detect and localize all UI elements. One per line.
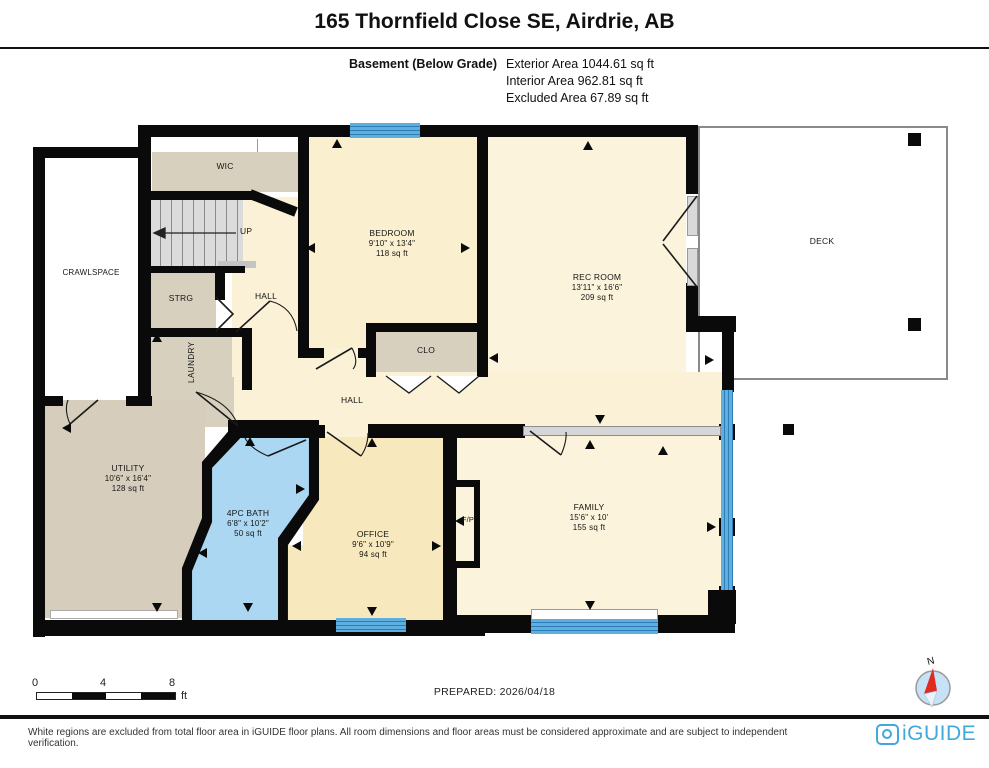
room-label-crawlspace: CRAWLSPACE	[46, 268, 136, 278]
floorplan-page: 165 Thornfield Close SE, Airdrie, AB Bas…	[0, 0, 989, 768]
header-divider	[0, 47, 989, 49]
room-label-rec-room: REC ROOM13'11" x 16'6"209 sq ft	[537, 272, 657, 304]
half-wall	[523, 426, 721, 436]
footer-divider	[0, 715, 989, 719]
page-title: 165 Thornfield Close SE, Airdrie, AB	[0, 10, 989, 34]
room-label-wic: WIC	[195, 161, 255, 172]
wall	[686, 137, 698, 194]
interior-area: Interior Area 962.81 sq ft	[506, 74, 643, 88]
wall	[233, 425, 325, 438]
footer-disclaimer: White regions are excluded from total fl…	[28, 727, 838, 749]
wic-shelf-divider	[257, 139, 258, 152]
floor-label: Basement (Below Grade)	[0, 57, 497, 71]
deck-post	[908, 133, 921, 146]
room-label-utility: UTILITY10'6" x 16'4"128 sq ft	[68, 463, 188, 495]
room-label-clo: CLO	[396, 345, 456, 356]
wall	[722, 330, 734, 392]
wall	[455, 424, 525, 438]
brand-name: iGUIDE	[902, 722, 976, 746]
wall	[126, 396, 152, 406]
wall	[33, 620, 485, 636]
strg-door	[216, 297, 233, 331]
wall	[33, 147, 45, 637]
wall	[708, 590, 736, 624]
wall	[298, 137, 309, 352]
room-label-strg: STRG	[151, 293, 211, 304]
wall	[477, 137, 488, 377]
wall	[298, 348, 324, 358]
deck-region	[698, 126, 948, 380]
window	[531, 619, 658, 634]
deck-post	[908, 318, 921, 331]
wall	[366, 323, 478, 332]
wall	[242, 328, 252, 390]
room-label-hall: HALL	[322, 395, 382, 406]
wall	[33, 147, 150, 158]
room-label-laundry: LAUNDRY	[187, 332, 197, 392]
room-label-family: FAMILY15'6" x 10'155 sq ft	[529, 502, 649, 534]
wall	[145, 266, 245, 273]
wall	[145, 191, 255, 200]
excluded-area: Excluded Area 67.89 sq ft	[506, 91, 648, 105]
room-label-deck: DECK	[792, 236, 852, 247]
window	[336, 618, 406, 632]
room-label-hall-upper: HALL	[236, 291, 296, 302]
prepared-date: PREPARED: 2026/04/18	[0, 686, 989, 698]
utility-sill	[50, 610, 178, 619]
office-region-notch	[288, 545, 308, 620]
room-label-bath: 4PC BATH6'8" x 10'2"50 sq ft	[188, 508, 308, 540]
utility-region	[45, 400, 205, 618]
camera-icon	[876, 724, 899, 745]
fireplace-label: F/P	[456, 515, 480, 525]
wall	[33, 396, 63, 406]
patio-door-panel	[687, 196, 698, 236]
room-label-office: OFFICE9'6" x 10'9"94 sq ft	[313, 529, 433, 561]
wall	[368, 424, 457, 438]
compass-north-label: N	[926, 655, 936, 667]
compass-icon: N	[916, 655, 950, 707]
exterior-post	[783, 424, 794, 435]
room-label-bedroom: BEDROOM9'10" x 13'4"118 sq ft	[332, 228, 452, 260]
wall	[215, 268, 225, 300]
stairs-up-label: UP	[240, 226, 264, 237]
staircase	[150, 199, 243, 266]
iguide-logo: iGUIDE	[876, 722, 976, 746]
wall	[366, 323, 376, 377]
patio-door-panel	[687, 248, 698, 286]
exterior-area: Exterior Area 1044.61 sq ft	[506, 57, 654, 71]
window	[350, 123, 420, 138]
window	[721, 390, 733, 590]
wic-shelf	[152, 139, 298, 153]
